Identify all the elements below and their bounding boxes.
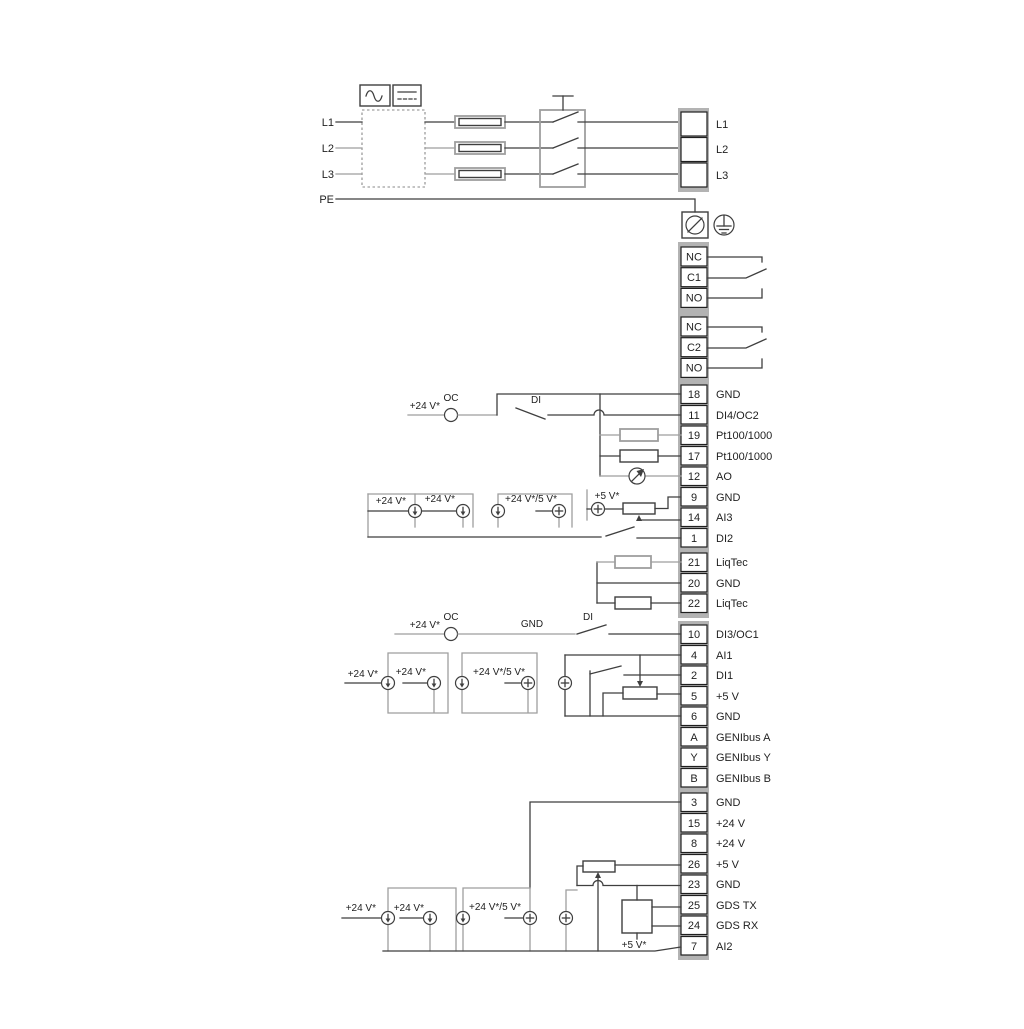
power-right-label-l1: L1: [716, 119, 728, 131]
terminal-number: 24: [688, 920, 700, 932]
voltage-source-icon: [560, 912, 573, 925]
terminal-number: 12: [688, 471, 700, 483]
voltage-source-icon: [522, 677, 535, 690]
terminal-number: Y: [690, 752, 698, 764]
current-source-icon: [456, 677, 469, 690]
terminal-label: +5 V: [716, 859, 740, 871]
terminal-number: 19: [688, 430, 700, 442]
potentiometer-ai1-icon: [603, 687, 681, 716]
group1-bracket: [388, 888, 456, 951]
terminal-label: LiqTec: [716, 598, 748, 610]
fuse-l3-icon: [425, 168, 553, 180]
oc-label: OC: [444, 612, 459, 623]
open-collector-icon: [445, 409, 458, 422]
plus24v-5v-label: +24 V*/5 V*: [469, 902, 521, 913]
power-right-label-l2: L2: [716, 144, 728, 156]
terminal-number: 1: [691, 533, 697, 545]
relay1-block: NC C1 NO: [678, 242, 766, 312]
relay2-no: NO: [686, 363, 703, 375]
plus24v-label: +24 V*: [410, 401, 440, 412]
di2-switch-blade: [606, 527, 634, 536]
plus24v-label: +24 V*: [394, 903, 424, 914]
terminal-strip-3: 10 4 2 5 6 A Y B DI3/OC1 AI1 DI1 +5 V GN…: [678, 621, 771, 792]
converter-dashed-box: [362, 110, 425, 187]
terminal-label: GENIbus Y: [716, 752, 771, 764]
relay2-c2: C2: [687, 342, 701, 354]
terminal-label: GENIbus B: [716, 773, 771, 785]
plus24v-5v-label: +24 V*/5 V*: [505, 494, 557, 505]
plus5v-label: +5 V*: [622, 940, 647, 951]
relay2-contact: [707, 339, 766, 348]
terminal-number: 26: [688, 859, 700, 871]
terminal-label: GENIbus A: [716, 732, 771, 744]
terminal-number: 8: [691, 838, 697, 850]
relay1-contact: [707, 269, 766, 278]
power-left-label-l3: L3: [322, 169, 334, 181]
earth-ground-icon: [714, 215, 734, 235]
terminal-number: 4: [691, 650, 697, 662]
gds-sensor-box: +5 V*: [622, 886, 681, 952]
wire-pe: [336, 199, 695, 212]
terminal-label: +5 V: [716, 691, 740, 703]
voltage-source-icon: [559, 677, 572, 690]
current-source-icon: [382, 912, 395, 925]
voltage-source-icon: [553, 505, 566, 518]
fuse-l2-icon: [425, 142, 553, 154]
plus24v-label: +24 V*: [376, 496, 406, 507]
terminal-label: GND: [716, 492, 741, 504]
wire-to-11: [548, 410, 681, 415]
terminal-label: +24 V: [716, 818, 746, 830]
oc-label: OC: [444, 393, 459, 404]
di1-switch-blade: [590, 666, 621, 674]
relay1-no-wire: [707, 289, 762, 298]
terminal-strip-1: 18 11 19 17 12 9 14 1 GND DI4/OC2 Pt100/…: [678, 381, 772, 552]
terminal-label: GND: [716, 389, 741, 401]
di3-switch-blade: [577, 625, 606, 634]
wiring-diagram: L1 L2 L3 PE: [0, 0, 1024, 1024]
terminal-strip-2: 21 20 22 LiqTec GND LiqTec: [678, 549, 748, 618]
terminal-number: 22: [688, 598, 700, 610]
fuse-l1-icon: [425, 116, 553, 128]
terminal-label: AI1: [716, 650, 733, 662]
terminal-number: 15: [688, 818, 700, 830]
voltage-source-icon: [592, 503, 605, 516]
power-section: L1 L2 L3 PE: [319, 85, 734, 238]
relay1-nc-wire: [707, 257, 762, 262]
pe-screw-terminal-icon: [682, 212, 708, 238]
terminal-number: 20: [688, 578, 700, 590]
open-collector-icon: [445, 628, 458, 641]
terminal-number: 9: [691, 492, 697, 504]
current-source-icon: [382, 677, 395, 690]
terminal-label: GND: [716, 578, 741, 590]
ac-symbol-icon: [360, 85, 390, 106]
plus24v-label: +24 V*: [410, 620, 440, 631]
voltage-source-icon: [524, 912, 537, 925]
terminal-number: 11: [688, 410, 699, 422]
plus24v-label: +24 V*: [425, 494, 455, 505]
plus5v-label: +5 V*: [595, 491, 620, 502]
terminal-number: 7: [691, 941, 697, 953]
strip1-wiring: +24 V* OC DI: [368, 393, 681, 538]
terminal-number: 14: [688, 512, 700, 524]
current-source-icon: [457, 912, 470, 925]
power-left-label-l2: L2: [322, 143, 334, 155]
wiring-diagram-page: L1 L2 L3 PE: [0, 0, 1024, 1024]
current-source-icon: [428, 677, 441, 690]
terminal-label: Pt100/1000: [716, 451, 772, 463]
plus24v-label: +24 V*: [346, 903, 376, 914]
power-terminal-block: L1 L2 L3: [678, 108, 728, 192]
gnd-rail-23: [577, 881, 681, 886]
terminal-number: 21: [688, 557, 700, 569]
relay2-nc-wire: [707, 327, 762, 332]
relay1-nc: NC: [686, 252, 702, 264]
terminal-label: AI3: [716, 512, 733, 524]
di-label: DI: [531, 395, 541, 406]
relay2-no-wire: [707, 359, 762, 368]
terminal-label: Pt100/1000: [716, 430, 772, 442]
group2-bracket: [463, 888, 530, 951]
power-right-label-l3: L3: [716, 170, 728, 182]
power-left-label-l1: L1: [322, 117, 334, 129]
terminal-label: GND: [716, 797, 741, 809]
strip4-wiring: +24 V* +24 V* +24 V*/5 V* +5 V*: [342, 802, 681, 951]
terminal-label: GND: [716, 879, 741, 891]
terminal-label: AI2: [716, 941, 733, 953]
terminal-number: 23: [688, 879, 700, 891]
terminal-number: 2: [691, 670, 697, 682]
terminal-number: A: [690, 732, 698, 744]
potentiometer-ai2-icon: [577, 861, 681, 951]
wire-gnd-3: [530, 802, 681, 888]
plus24v-label: +24 V*: [348, 669, 378, 680]
strip3-wiring: +24 V* OC GND DI +24 V* +24 V* +24 V*/5 …: [345, 612, 681, 716]
liqtec-sensor-1-icon: [597, 556, 681, 568]
relay1-c1: C1: [687, 272, 701, 284]
dc-symbol-icon: [393, 85, 421, 106]
plus24v-label: +24 V*: [396, 667, 426, 678]
gnd-label: GND: [521, 619, 543, 630]
strip2-wiring: [597, 556, 681, 609]
terminal-number: 5: [691, 691, 697, 703]
terminal-number: 18: [688, 389, 700, 401]
terminal-label: GDS RX: [716, 920, 759, 932]
terminal-number: 17: [688, 451, 700, 463]
terminal-number: 10: [688, 629, 700, 641]
di-label: DI: [583, 612, 593, 623]
potentiometer-ai3-icon: [623, 497, 681, 521]
terminal-label: DI3/OC1: [716, 629, 759, 641]
terminal-label: AO: [716, 471, 732, 483]
terminal-number: 6: [691, 711, 697, 723]
terminal-label: DI4/OC2: [716, 410, 759, 422]
plus24v-5v-label: +24 V*/5 V*: [473, 667, 525, 678]
terminal-number: 3: [691, 797, 697, 809]
current-source-icon: [457, 505, 470, 518]
terminal-label: DI2: [716, 533, 733, 545]
current-source-icon: [424, 912, 437, 925]
relay2-block: NC C2 NO: [678, 312, 766, 382]
pt100-sensor-1-icon: [600, 429, 681, 441]
meter-icon: [600, 468, 681, 484]
current-source-icon: [409, 505, 422, 518]
di-switch-blade: [516, 408, 545, 419]
terminal-strip-4: 3 15 8 26 23 25 24 7 GND +24 V +24 V +5 …: [678, 789, 759, 960]
relay2-nc: NC: [686, 322, 702, 334]
current-source-icon: [492, 505, 505, 518]
pt100-sensor-2-icon: [600, 450, 681, 462]
relay1-no: NO: [686, 293, 703, 305]
wiper-arrow: [637, 681, 643, 687]
terminal-number: B: [690, 773, 697, 785]
terminal-label: +24 V: [716, 838, 746, 850]
liqtec-sensor-2-icon: [597, 597, 681, 609]
terminal-label: LiqTec: [716, 557, 748, 569]
terminal-number: 25: [688, 900, 700, 912]
terminal-label: GDS TX: [716, 900, 757, 912]
power-left-label-pe: PE: [319, 194, 334, 206]
terminal-label: DI1: [716, 670, 733, 682]
terminal-label: GND: [716, 711, 741, 723]
